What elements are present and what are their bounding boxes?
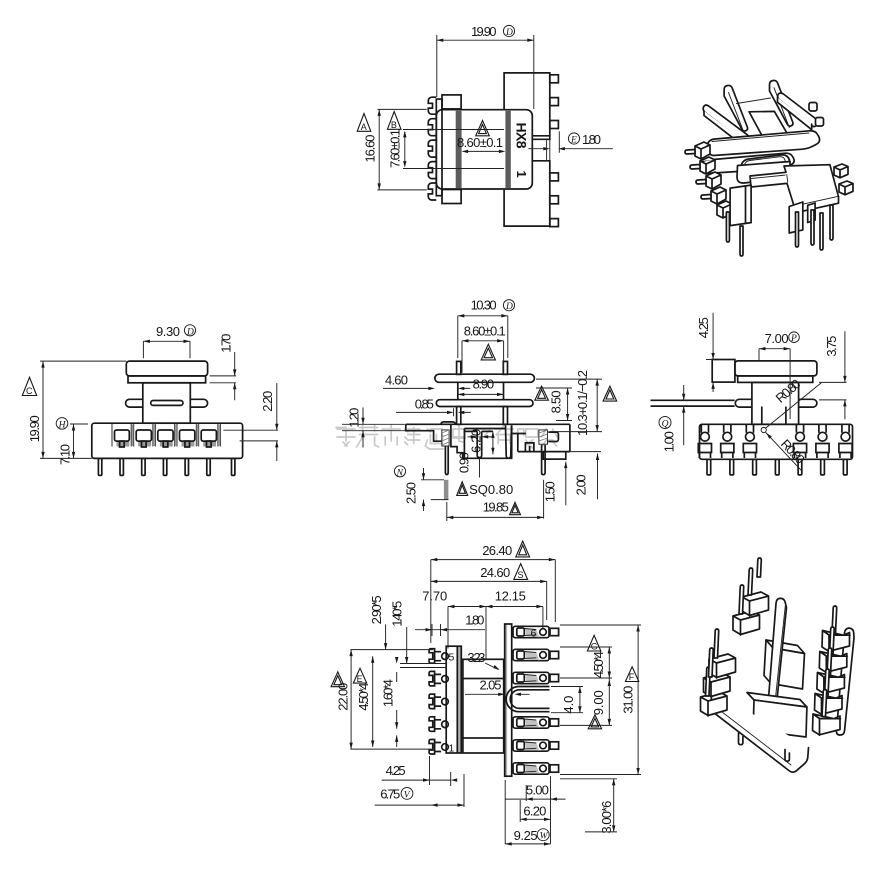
- svg-text:1.80: 1.80: [582, 132, 601, 147]
- svg-text:1.00: 1.00: [661, 431, 676, 452]
- svg-text:19.85: 19.85: [483, 500, 509, 515]
- svg-text:8.60±0.1: 8.60±0.1: [464, 324, 506, 339]
- svg-text:N: N: [396, 468, 404, 478]
- svg-text:HX8: HX8: [514, 123, 530, 149]
- svg-text:1.70: 1.70: [219, 334, 234, 353]
- svg-text:7.70: 7.70: [422, 588, 447, 603]
- svg-text:1.60*4: 1.60*4: [380, 679, 395, 707]
- svg-text:0.90: 0.90: [457, 452, 472, 473]
- svg-text:5: 5: [449, 652, 455, 664]
- svg-text:10.3+0.1/−0.2: 10.3+0.1/−0.2: [575, 370, 590, 436]
- svg-text:4.50*4: 4.50*4: [356, 683, 371, 711]
- svg-text:3.00*6: 3.00*6: [599, 801, 614, 834]
- svg-text:6.20: 6.20: [523, 804, 546, 819]
- svg-text:6.20: 6.20: [468, 429, 483, 453]
- svg-text:9.25: 9.25: [514, 828, 538, 843]
- svg-text:B: B: [391, 120, 397, 130]
- svg-text:7.10: 7.10: [58, 444, 73, 465]
- svg-text:1.50: 1.50: [543, 481, 558, 502]
- svg-text:4.0: 4.0: [561, 696, 576, 714]
- svg-text:H: H: [58, 420, 67, 430]
- svg-text:1: 1: [449, 743, 455, 755]
- svg-text:8.90: 8.90: [473, 377, 495, 392]
- svg-text:E: E: [570, 136, 577, 146]
- svg-text:2.00: 2.00: [574, 474, 589, 495]
- svg-text:Q: Q: [662, 420, 669, 430]
- svg-text:W: W: [540, 832, 549, 842]
- svg-text:12.15: 12.15: [495, 588, 526, 603]
- svg-text:SQ0.80: SQ0.80: [469, 482, 513, 497]
- svg-text:10.30: 10.30: [471, 298, 497, 313]
- svg-text:F: F: [629, 672, 635, 682]
- svg-text:7.60±0.1: 7.60±0.1: [388, 129, 403, 168]
- svg-text:4.60: 4.60: [385, 373, 408, 388]
- svg-text:3.23: 3.23: [467, 650, 485, 665]
- svg-text:7.00: 7.00: [765, 331, 789, 346]
- svg-text:8.50: 8.50: [548, 390, 563, 413]
- svg-text:9.30: 9.30: [156, 324, 180, 339]
- svg-text:6.75: 6.75: [380, 786, 400, 801]
- svg-text:2.90*5: 2.90*5: [369, 595, 384, 624]
- svg-text:1.80: 1.80: [465, 612, 484, 627]
- svg-text:E: E: [357, 674, 363, 684]
- svg-text:19.90: 19.90: [27, 415, 42, 442]
- svg-text:5.00: 5.00: [526, 783, 549, 798]
- svg-text:C: C: [26, 386, 33, 396]
- svg-text:26.40: 26.40: [482, 543, 512, 558]
- svg-text:1: 1: [514, 171, 529, 178]
- svg-text:P: P: [790, 334, 797, 344]
- svg-text:2.05: 2.05: [480, 677, 502, 692]
- svg-text:3.75: 3.75: [824, 336, 839, 357]
- svg-text:9.00: 9.00: [591, 690, 606, 715]
- svg-text:8.60±0.1: 8.60±0.1: [457, 135, 503, 150]
- svg-text:4.50*4: 4.50*4: [591, 651, 606, 678]
- svg-text:D: D: [186, 327, 194, 337]
- svg-text:4.25: 4.25: [386, 763, 406, 778]
- svg-text:S: S: [518, 570, 524, 580]
- svg-text:1.40*5: 1.40*5: [389, 601, 404, 627]
- svg-text:D: D: [505, 302, 513, 312]
- svg-text:24.60: 24.60: [480, 565, 510, 580]
- svg-text:D: D: [505, 28, 513, 38]
- svg-text:A: A: [361, 122, 367, 132]
- svg-text:16.60: 16.60: [363, 135, 378, 163]
- svg-text:2.20: 2.20: [260, 391, 275, 412]
- svg-text:2.50: 2.50: [404, 482, 419, 504]
- svg-text:19.90: 19.90: [471, 24, 497, 39]
- svg-text:31.00: 31.00: [621, 686, 636, 714]
- svg-text:0.85: 0.85: [415, 397, 434, 412]
- svg-text:6: 6: [531, 628, 537, 640]
- svg-text:4.25: 4.25: [696, 317, 711, 338]
